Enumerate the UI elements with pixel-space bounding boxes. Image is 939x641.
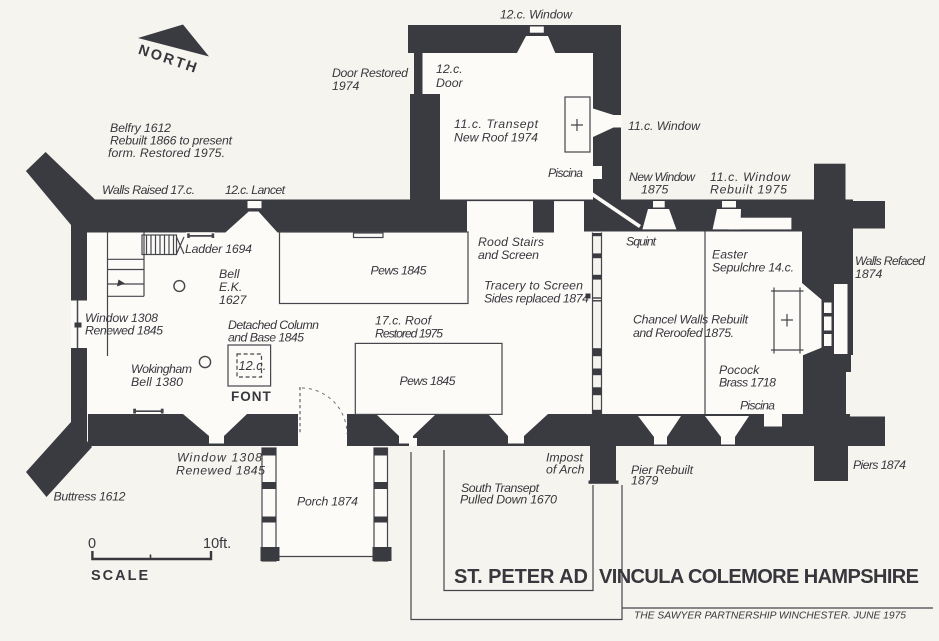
svg-text:Pews 1845: Pews 1845 [371,264,427,278]
svg-text:Brass 1718: Brass 1718 [719,376,776,390]
svg-text:Bell 1380: Bell 1380 [131,375,183,389]
svg-text:10ft.: 10ft. [203,536,231,552]
svg-text:Wokingham: Wokingham [131,362,192,376]
svg-text:Ladder 1694: Ladder 1694 [185,242,252,256]
svg-text:Pews 1845: Pews 1845 [400,374,456,388]
svg-text:Tracery to Screen: Tracery to Screen [484,279,583,293]
svg-text:form. Restored 1975.: form. Restored 1975. [108,146,225,160]
svg-text:Porch 1874: Porch 1874 [297,495,358,509]
svg-text:Rood Stairs: Rood Stairs [478,235,544,249]
svg-text:Pulled Down 1670: Pulled Down 1670 [460,493,557,507]
svg-text:Restored 1975: Restored 1975 [375,327,443,341]
svg-text:Piscina: Piscina [548,166,583,180]
svg-text:1974: 1974 [332,79,360,93]
svg-text:12.c.: 12.c. [239,358,267,373]
svg-text:17.c. Roof: 17.c. Roof [375,314,433,328]
svg-text:12.c. Lancet: 12.c. Lancet [225,183,286,197]
svg-text:12.c. Window: 12.c. Window [500,8,573,22]
svg-text:New Roof 1974: New Roof 1974 [454,131,538,145]
svg-text:and Reroofed 1875.: and Reroofed 1875. [633,326,734,340]
svg-text:Sides replaced 1874: Sides replaced 1874 [484,292,589,306]
svg-text:and Base 1845: and Base 1845 [228,331,304,345]
svg-text:Piscina: Piscina [740,399,775,413]
svg-text:ST. PETER AD: ST. PETER AD [454,566,589,588]
svg-text:Rebuilt 1975: Rebuilt 1975 [710,183,787,197]
svg-text:Walls Raised 17.c.: Walls Raised 17.c. [102,183,195,197]
svg-text:E.K.: E.K. [219,280,242,294]
svg-text:Walls Refaced: Walls Refaced [855,254,926,268]
svg-text:1874: 1874 [855,267,883,281]
svg-text:Easter: Easter [712,248,748,262]
svg-text:VINCULA COLEMORE HAMPSHIRE: VINCULA COLEMORE HAMPSHIRE [599,566,920,588]
svg-text:FONT: FONT [231,389,272,404]
svg-text:SCALE: SCALE [91,568,150,584]
svg-text:Door Restored: Door Restored [332,66,409,80]
svg-text:and Screen: and Screen [478,248,539,262]
svg-text:Renewed 1845: Renewed 1845 [176,464,265,478]
svg-text:Chancel Walls Rebuilt: Chancel Walls Rebuilt [633,313,749,327]
svg-text:11.c. Window: 11.c. Window [628,119,701,133]
svg-text:THE SAWYER PARTNERSHIP WINCHES: THE SAWYER PARTNERSHIP WINCHESTER. JUNE … [634,611,906,622]
svg-text:0: 0 [88,536,96,552]
svg-text:Piers 1874: Piers 1874 [853,458,906,472]
svg-text:Sepulchre 14.c.: Sepulchre 14.c. [712,261,794,275]
svg-text:Buttress 1612: Buttress 1612 [54,490,126,504]
svg-text:of Arch: of Arch [546,463,585,477]
svg-text:1879: 1879 [631,474,659,488]
svg-text:Renewed 1845: Renewed 1845 [85,324,163,338]
svg-text:Squint: Squint [626,235,657,249]
svg-text:Door: Door [436,76,464,90]
svg-text:12.c.: 12.c. [436,62,463,76]
svg-text:Window 1308: Window 1308 [177,451,262,465]
svg-text:11.c. Transept: 11.c. Transept [454,117,539,131]
svg-text:1627: 1627 [219,293,248,307]
svg-text:1875: 1875 [641,183,669,197]
svg-text:Bell: Bell [219,267,241,281]
